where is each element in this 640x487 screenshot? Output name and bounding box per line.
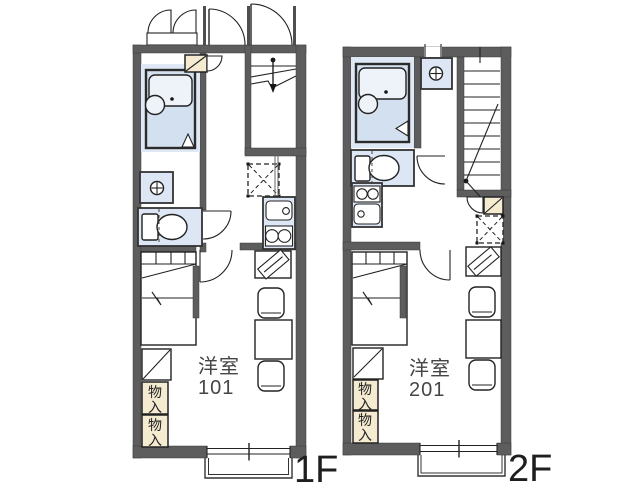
tv-stand-icon [466, 247, 501, 276]
bed-icon [352, 252, 407, 345]
washing-machine-pan-icon [140, 172, 173, 203]
storage-label: 物入 [356, 382, 374, 412]
room-name: 洋室 [198, 357, 240, 378]
room-number: 101 [198, 378, 240, 399]
kitchen-icon [263, 197, 295, 249]
table-icon [255, 320, 292, 359]
tv-stand-icon [255, 250, 291, 279]
floorplan-drawing [0, 0, 640, 487]
storage-label: 物入 [146, 418, 164, 448]
room-number: 201 [409, 380, 451, 401]
balcony-window-icon [207, 443, 290, 461]
balcony [205, 458, 292, 478]
room-door-icon [420, 250, 450, 280]
storage-label: 物入 [146, 385, 164, 415]
porch-divider [203, 6, 206, 45]
dining-set [255, 288, 292, 391]
floorplan-canvas: 洋室 101 洋室 201 物入 物入 物入 物入 1F 2F [0, 0, 640, 487]
washroom-door-icon [207, 56, 222, 71]
floor-label-2f: 2F [508, 450, 552, 487]
entrance-door-201-icon [251, 4, 292, 45]
room-door-icon [200, 250, 232, 282]
staircase-icon [464, 47, 500, 212]
bedside-wall [193, 266, 199, 318]
storage-label: 物入 [356, 413, 374, 443]
unit-bath [141, 64, 200, 152]
toilet-door-icon [203, 211, 231, 239]
balcony [418, 455, 505, 476]
balcony-window-icon [420, 440, 497, 458]
room-label-101: 洋室 101 [198, 357, 240, 399]
toilet-icon [351, 150, 414, 186]
porch-divider [293, 6, 296, 45]
kitchen-icon [352, 183, 382, 227]
shoe-cabinet-icon [185, 55, 207, 72]
closet-icon [353, 348, 383, 379]
bed-icon [141, 252, 196, 345]
refrigerator-space-icon [476, 215, 505, 245]
hall-door-icon [467, 197, 483, 213]
casement-window-icon [147, 10, 197, 45]
closet-icon [142, 349, 171, 380]
table-icon [466, 320, 501, 358]
toilet-icon [138, 208, 202, 246]
dining-set [466, 287, 501, 390]
room-name: 洋室 [409, 359, 451, 380]
entrance-door-101-icon [209, 9, 245, 45]
floor-label-1f: 1F [294, 451, 338, 487]
room-label-201: 洋室 201 [409, 359, 451, 401]
staircase-icon [251, 58, 296, 93]
porch-divider [247, 6, 250, 45]
toilet-door-icon [417, 156, 445, 184]
unit-bath [351, 57, 414, 148]
washing-machine-pan-icon [421, 58, 452, 89]
bedside-wall [400, 266, 406, 318]
shoe-cabinet-icon [484, 197, 503, 214]
